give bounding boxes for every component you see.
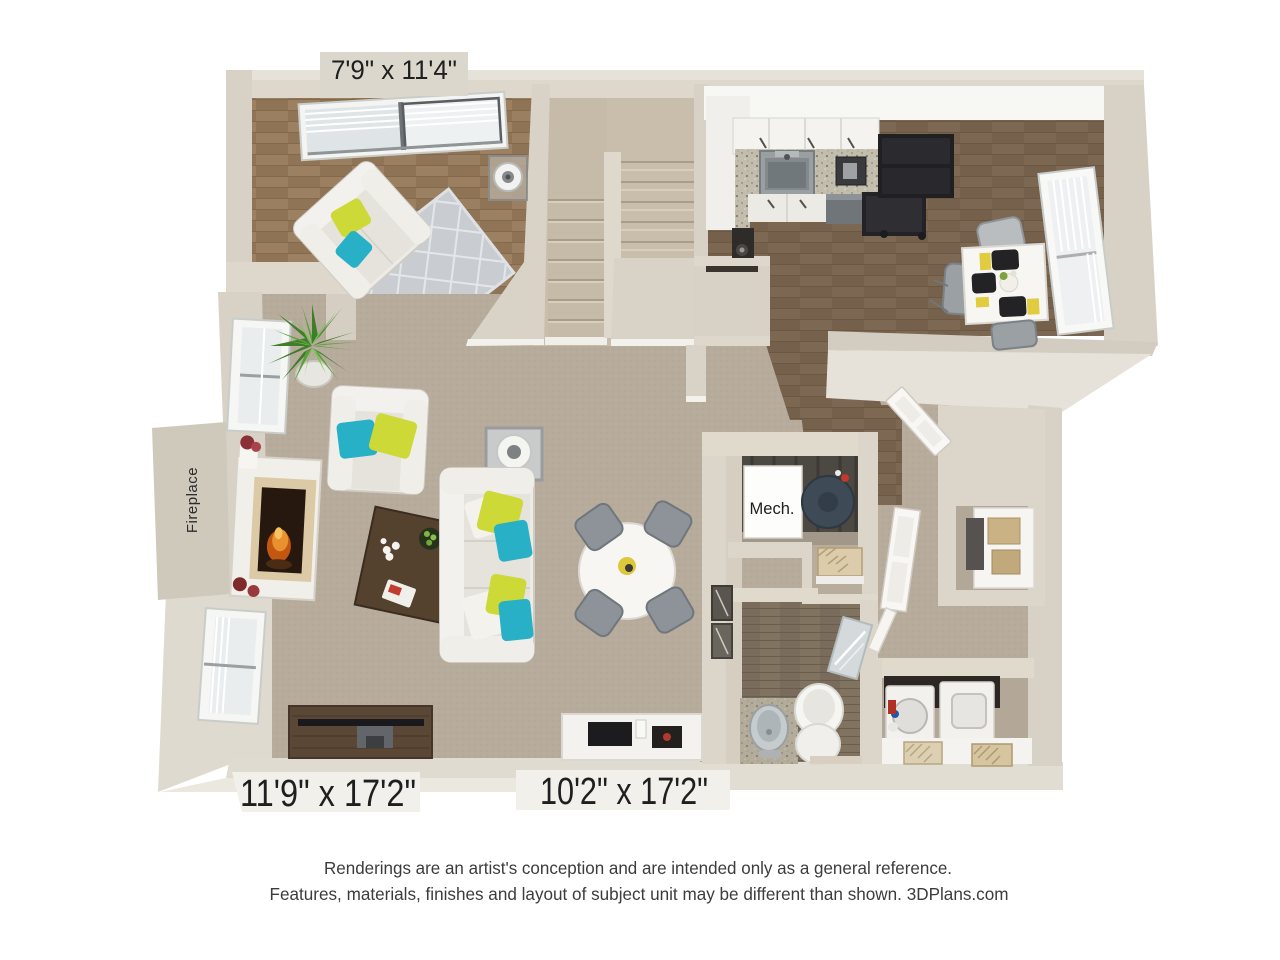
svg-text:Fireplace: Fireplace xyxy=(184,467,201,533)
svg-text:Renderings are an artist's con: Renderings are an artist's conception an… xyxy=(324,858,952,878)
svg-text:10'2" x 17'2": 10'2" x 17'2" xyxy=(540,771,708,813)
svg-text:7'9" x 11'4": 7'9" x 11'4" xyxy=(331,55,457,85)
svg-text:11'9" x 17'2": 11'9" x 17'2" xyxy=(240,773,416,815)
svg-text:Mech.: Mech. xyxy=(750,500,795,518)
svg-text:Features, materials, finishes: Features, materials, finishes and layout… xyxy=(270,884,1009,904)
